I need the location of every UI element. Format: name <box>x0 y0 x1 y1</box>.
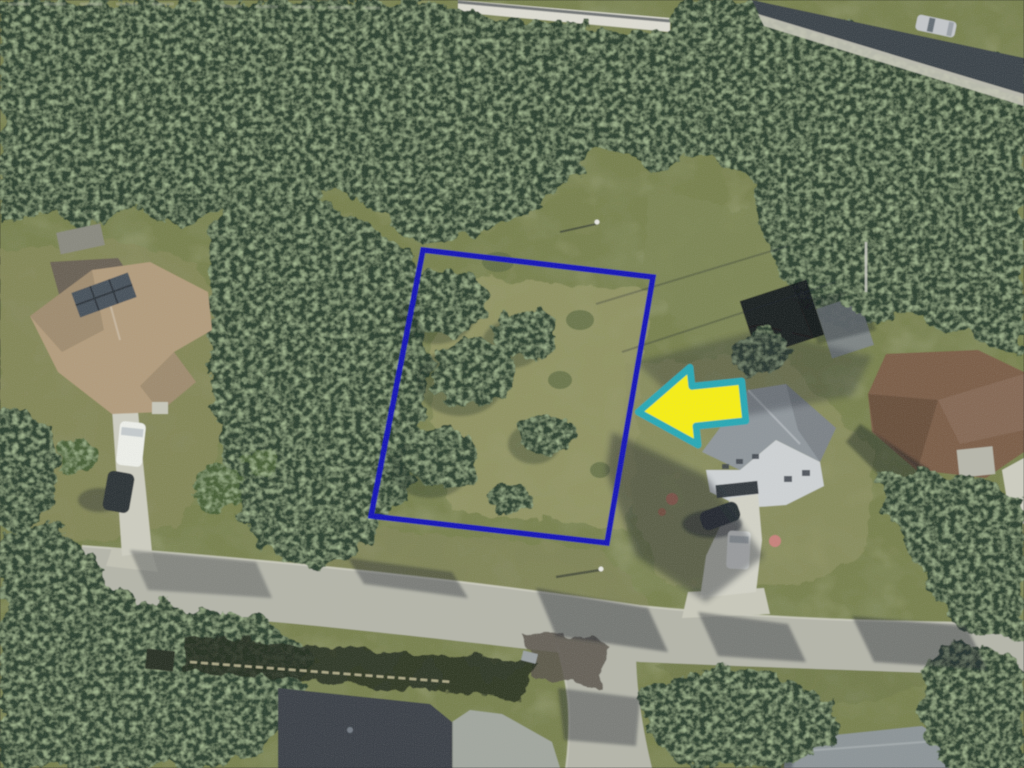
photo-grain <box>0 0 1024 768</box>
aerial-photo <box>0 0 1024 768</box>
